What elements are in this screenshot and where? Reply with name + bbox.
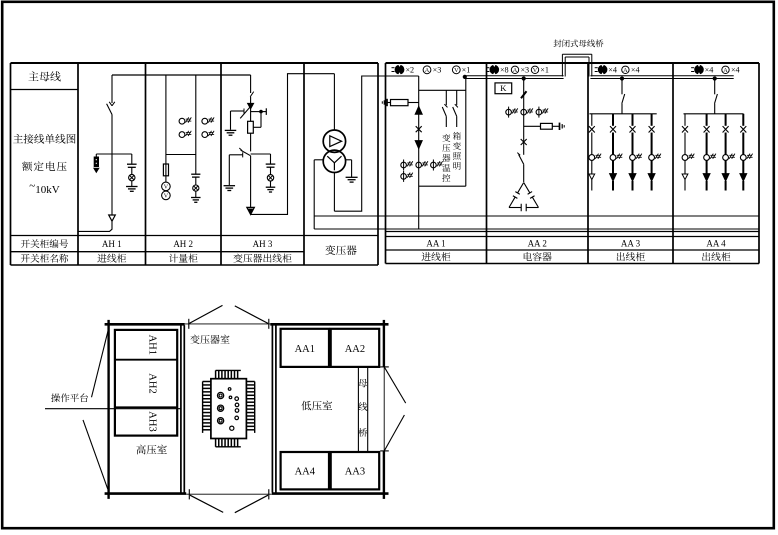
svg-text:AH 1: AH 1	[102, 239, 122, 249]
svg-text:AA 3: AA 3	[621, 238, 641, 248]
svg-text:×4: ×4	[631, 66, 640, 75]
svg-text:AA 1: AA 1	[426, 238, 445, 248]
svg-text:V: V	[164, 193, 169, 199]
svg-text:A: A	[513, 67, 518, 74]
svg-text:AA1: AA1	[295, 344, 315, 355]
svg-text:×4: ×4	[731, 66, 740, 75]
svg-text:K: K	[500, 83, 507, 93]
svg-text:A: A	[723, 67, 728, 74]
svg-text:×2: ×2	[405, 66, 414, 75]
svg-text:×4: ×4	[608, 66, 617, 75]
svg-text:V: V	[454, 67, 459, 74]
svg-text:A: A	[623, 67, 628, 74]
svg-text:AH 2: AH 2	[173, 239, 193, 249]
svg-text:×4: ×4	[705, 66, 714, 75]
svg-text:×3: ×3	[520, 66, 529, 75]
svg-text:AA3: AA3	[345, 467, 365, 478]
svg-text:×3: ×3	[433, 66, 442, 75]
svg-text:AA 2: AA 2	[528, 238, 547, 248]
svg-text:AH2: AH2	[147, 373, 158, 393]
svg-text:A: A	[425, 67, 430, 74]
svg-text:AH3: AH3	[147, 411, 158, 431]
svg-text:AH 3: AH 3	[253, 239, 273, 249]
svg-text:AH1: AH1	[147, 335, 158, 355]
svg-text:V: V	[164, 184, 169, 190]
svg-text:AA4: AA4	[295, 467, 316, 478]
svg-text:×1: ×1	[540, 66, 549, 75]
svg-text:×8: ×8	[500, 66, 509, 75]
svg-text:×1: ×1	[462, 66, 471, 75]
svg-text:AA2: AA2	[345, 344, 365, 355]
svg-text:AA 4: AA 4	[706, 238, 726, 248]
svg-text:V: V	[533, 67, 538, 74]
